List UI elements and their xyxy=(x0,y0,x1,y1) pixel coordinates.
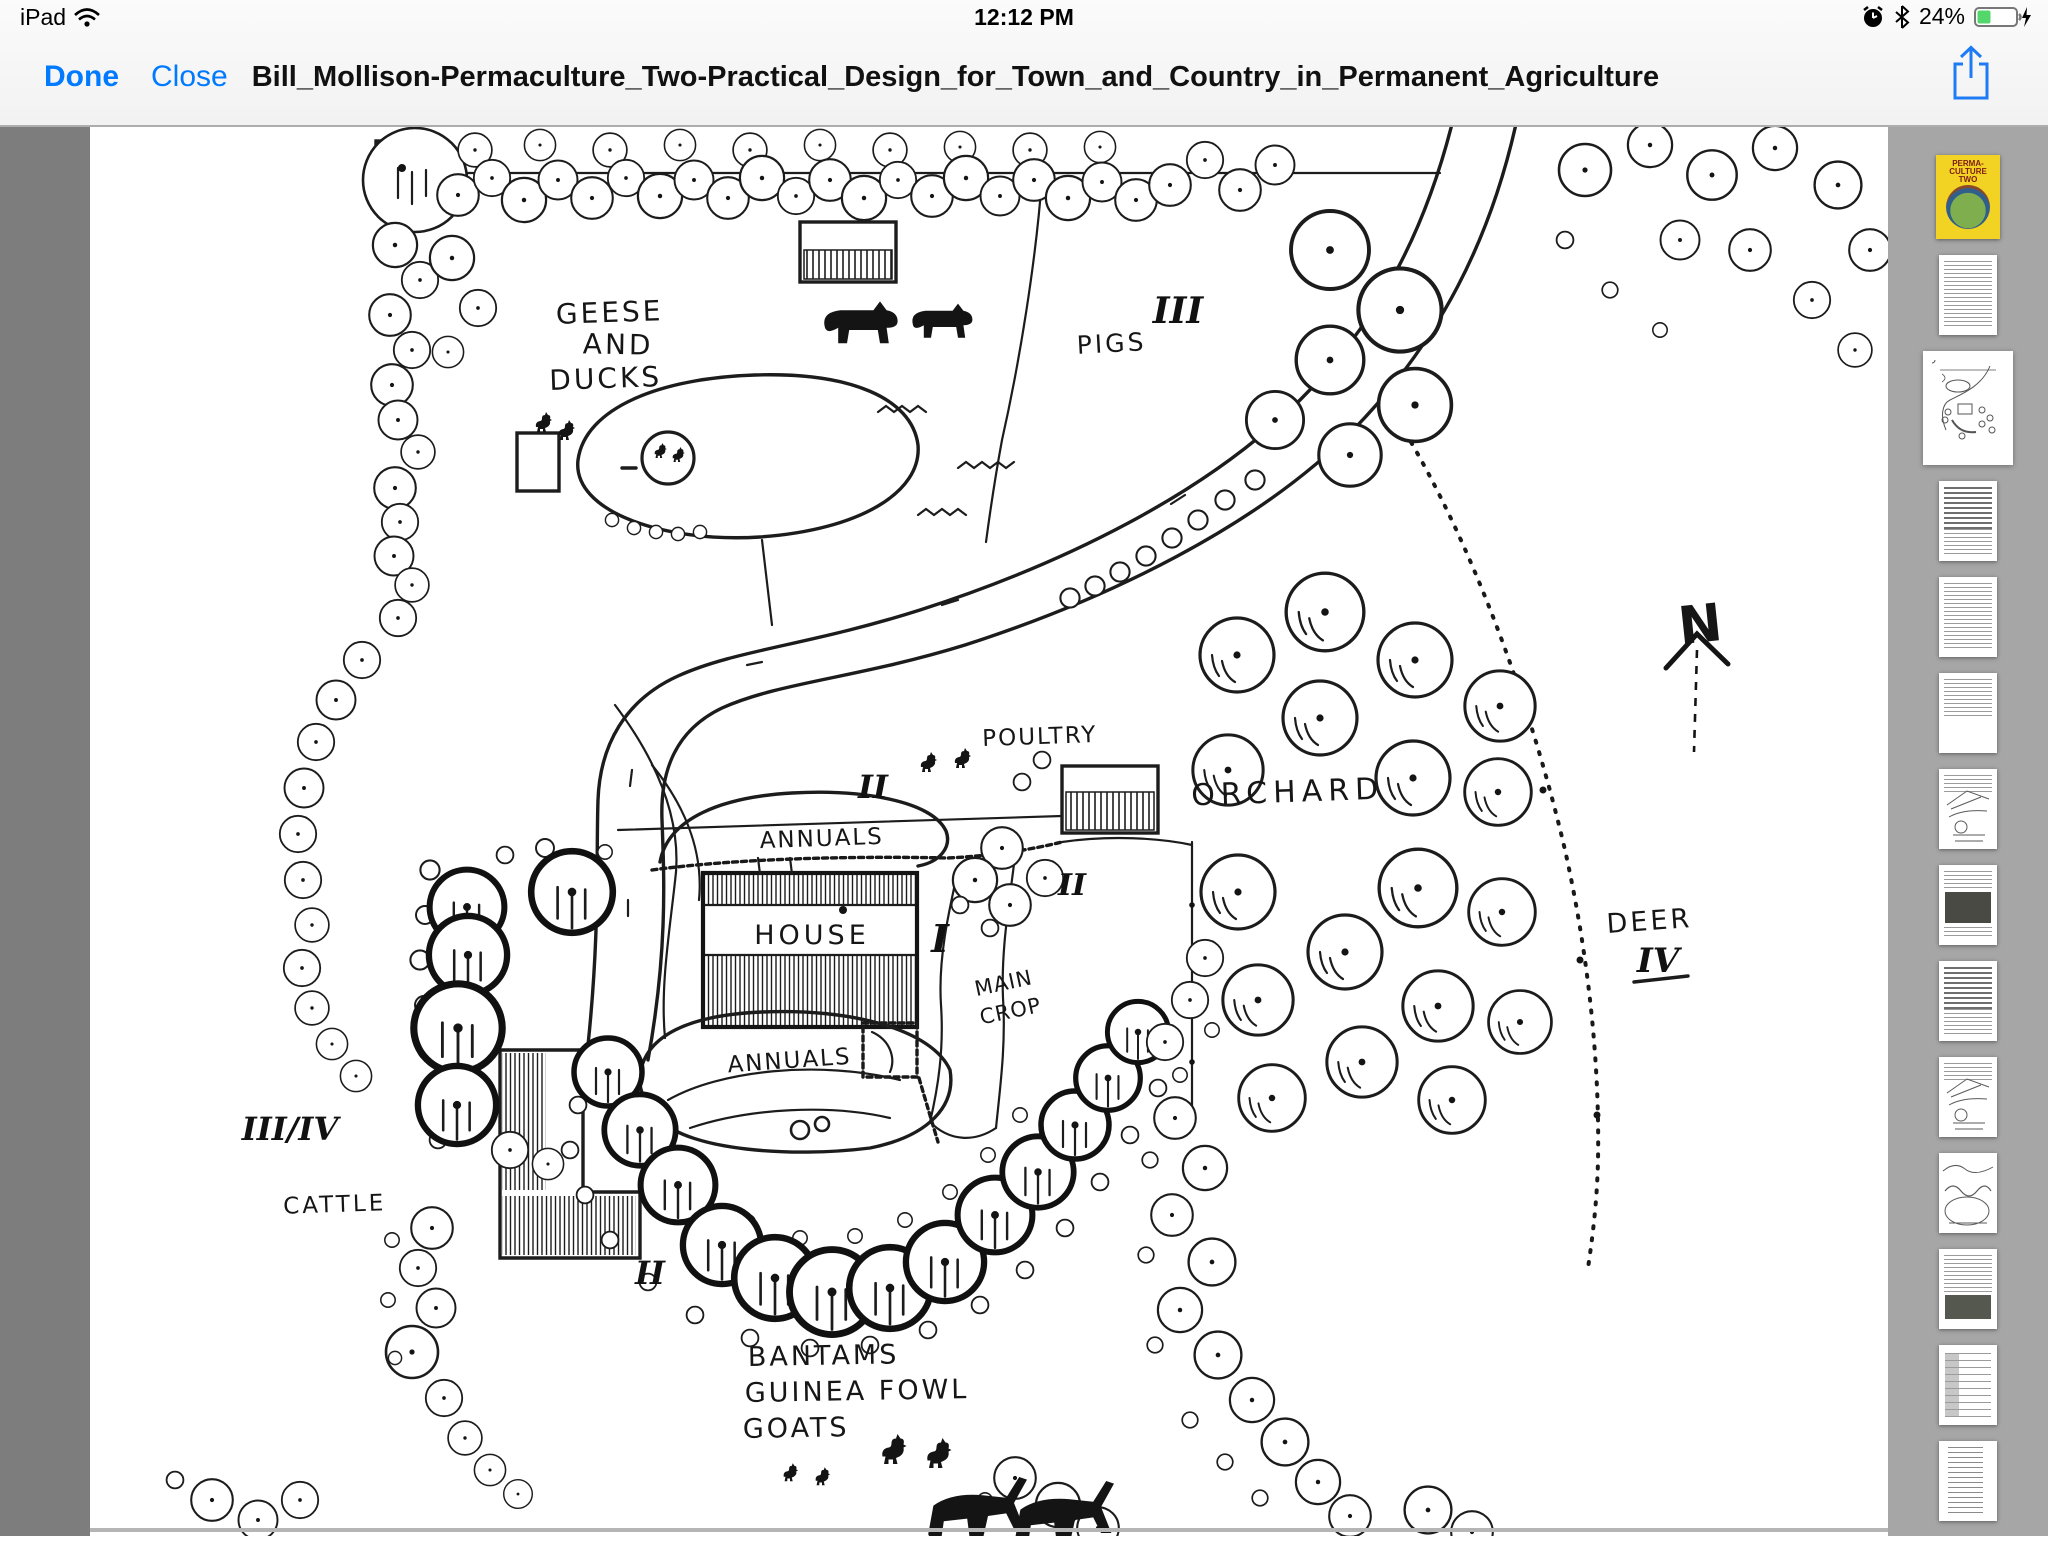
tree-cluster-road-bend xyxy=(1060,211,1451,608)
zone-1-marker: I xyxy=(930,916,950,961)
north-arrow: N xyxy=(1666,593,1728,752)
share-icon[interactable] xyxy=(1948,44,1994,102)
pond-island xyxy=(642,432,694,484)
orchard-label: ORCHARD xyxy=(1191,772,1385,814)
alarm-clock-icon xyxy=(1861,5,1885,29)
zone-3-marker: III xyxy=(1152,290,1205,332)
deer-label: DEER xyxy=(1606,903,1694,940)
poultry-shed xyxy=(1062,766,1158,833)
header-bar: iPad 12:12 PM 24% xyxy=(0,0,2048,127)
current-page-indicator[interactable] xyxy=(1923,351,2013,465)
annuals-upper-label: ANNUALS xyxy=(759,824,884,854)
zone-2-marker-poultry: II xyxy=(857,768,889,806)
pond xyxy=(578,375,1014,538)
page-thumbnail-2[interactable] xyxy=(1939,255,1997,335)
zone-4-marker: IV xyxy=(1636,941,1683,981)
page-thumbnail-10[interactable] xyxy=(1939,1057,1997,1137)
page-thumbnail-12[interactable] xyxy=(1939,1249,1997,1329)
tree-cluster-top-right xyxy=(1557,127,1888,367)
page-thumbnail-13[interactable] xyxy=(1939,1345,1997,1425)
page-thumbnail-11[interactable] xyxy=(1939,1153,1997,1233)
page-thumbnail-9[interactable] xyxy=(1939,961,1997,1041)
duck-sketches xyxy=(536,412,575,440)
status-bar: iPad 12:12 PM 24% xyxy=(0,0,2048,32)
annuals-lower-label: ANNUALS xyxy=(727,1044,853,1079)
close-button[interactable]: Close xyxy=(151,60,228,94)
house-annex xyxy=(863,1023,917,1077)
bluetooth-icon xyxy=(1894,5,1910,29)
pdf-toolbar: Done Close Bill_Mollison-Permaculture_Tw… xyxy=(0,38,2048,116)
page-thumbnail-8[interactable] xyxy=(1939,865,1997,945)
page-thumbnail-6[interactable] xyxy=(1939,673,1997,753)
zone-3-4-marker: III/IV xyxy=(241,1110,342,1148)
shed-building xyxy=(800,222,896,282)
house-label: HOUSE xyxy=(754,920,870,951)
chicken-sketches xyxy=(921,748,971,772)
deer-boundary-fence xyxy=(1405,432,1601,1268)
geese-label: GEESE xyxy=(555,294,664,331)
geese-label-3: DUCKS xyxy=(549,360,663,397)
bantams-label: BANTAMS xyxy=(748,1339,900,1373)
battery-icon xyxy=(1974,5,2032,29)
thumbnail-sidebar[interactable]: PERMA-CULTURETWO xyxy=(1888,127,2048,1536)
orchard-trees xyxy=(1193,573,1552,1133)
goats-label: GOATS xyxy=(743,1412,850,1445)
page-gutter xyxy=(0,127,90,1536)
page-thumbnail-1[interactable]: PERMA-CULTURETWO xyxy=(1936,155,2000,239)
pigs-label: PIGS xyxy=(1076,327,1147,360)
page-thumbnail-3[interactable] xyxy=(1932,360,2004,456)
charging-bolt-icon xyxy=(2022,7,2031,27)
cattle-label: CATTLE xyxy=(283,1190,387,1220)
battery-percent: 24% xyxy=(1919,3,1965,30)
document-title: Bill_Mollison-Permaculture_Two-Practical… xyxy=(252,61,1659,94)
geese-pen-building xyxy=(517,433,559,491)
page-thumbnail-14[interactable] xyxy=(1939,1441,1997,1521)
tree-border-top xyxy=(363,128,1295,232)
geese-label-2: AND xyxy=(583,327,654,361)
page-thumbnail-5[interactable] xyxy=(1939,577,1997,657)
clock-time: 12:12 PM xyxy=(0,4,2048,31)
done-button[interactable]: Done xyxy=(44,60,119,94)
permaculture-plan-drawing: N GEESE AND DUCKS PIGS III POULTRY II OR… xyxy=(90,127,1888,1536)
pig-sketches xyxy=(814,301,972,343)
page-bottom-edge xyxy=(90,1528,1888,1532)
zone-2-marker-bottom: II xyxy=(634,1254,666,1292)
guinea-fowl-label: GUINEA FOWL xyxy=(745,1374,970,1409)
page-thumbnail-7[interactable] xyxy=(1939,769,1997,849)
zone-2-marker-orchard: II xyxy=(1057,868,1087,903)
poultry-label: POULTRY xyxy=(982,722,1098,752)
page-thumbnail-4[interactable] xyxy=(1939,481,1997,561)
annuals-bed-lower xyxy=(640,1012,951,1153)
pdf-page-canvas[interactable]: N GEESE AND DUCKS PIGS III POULTRY II OR… xyxy=(90,127,1888,1536)
